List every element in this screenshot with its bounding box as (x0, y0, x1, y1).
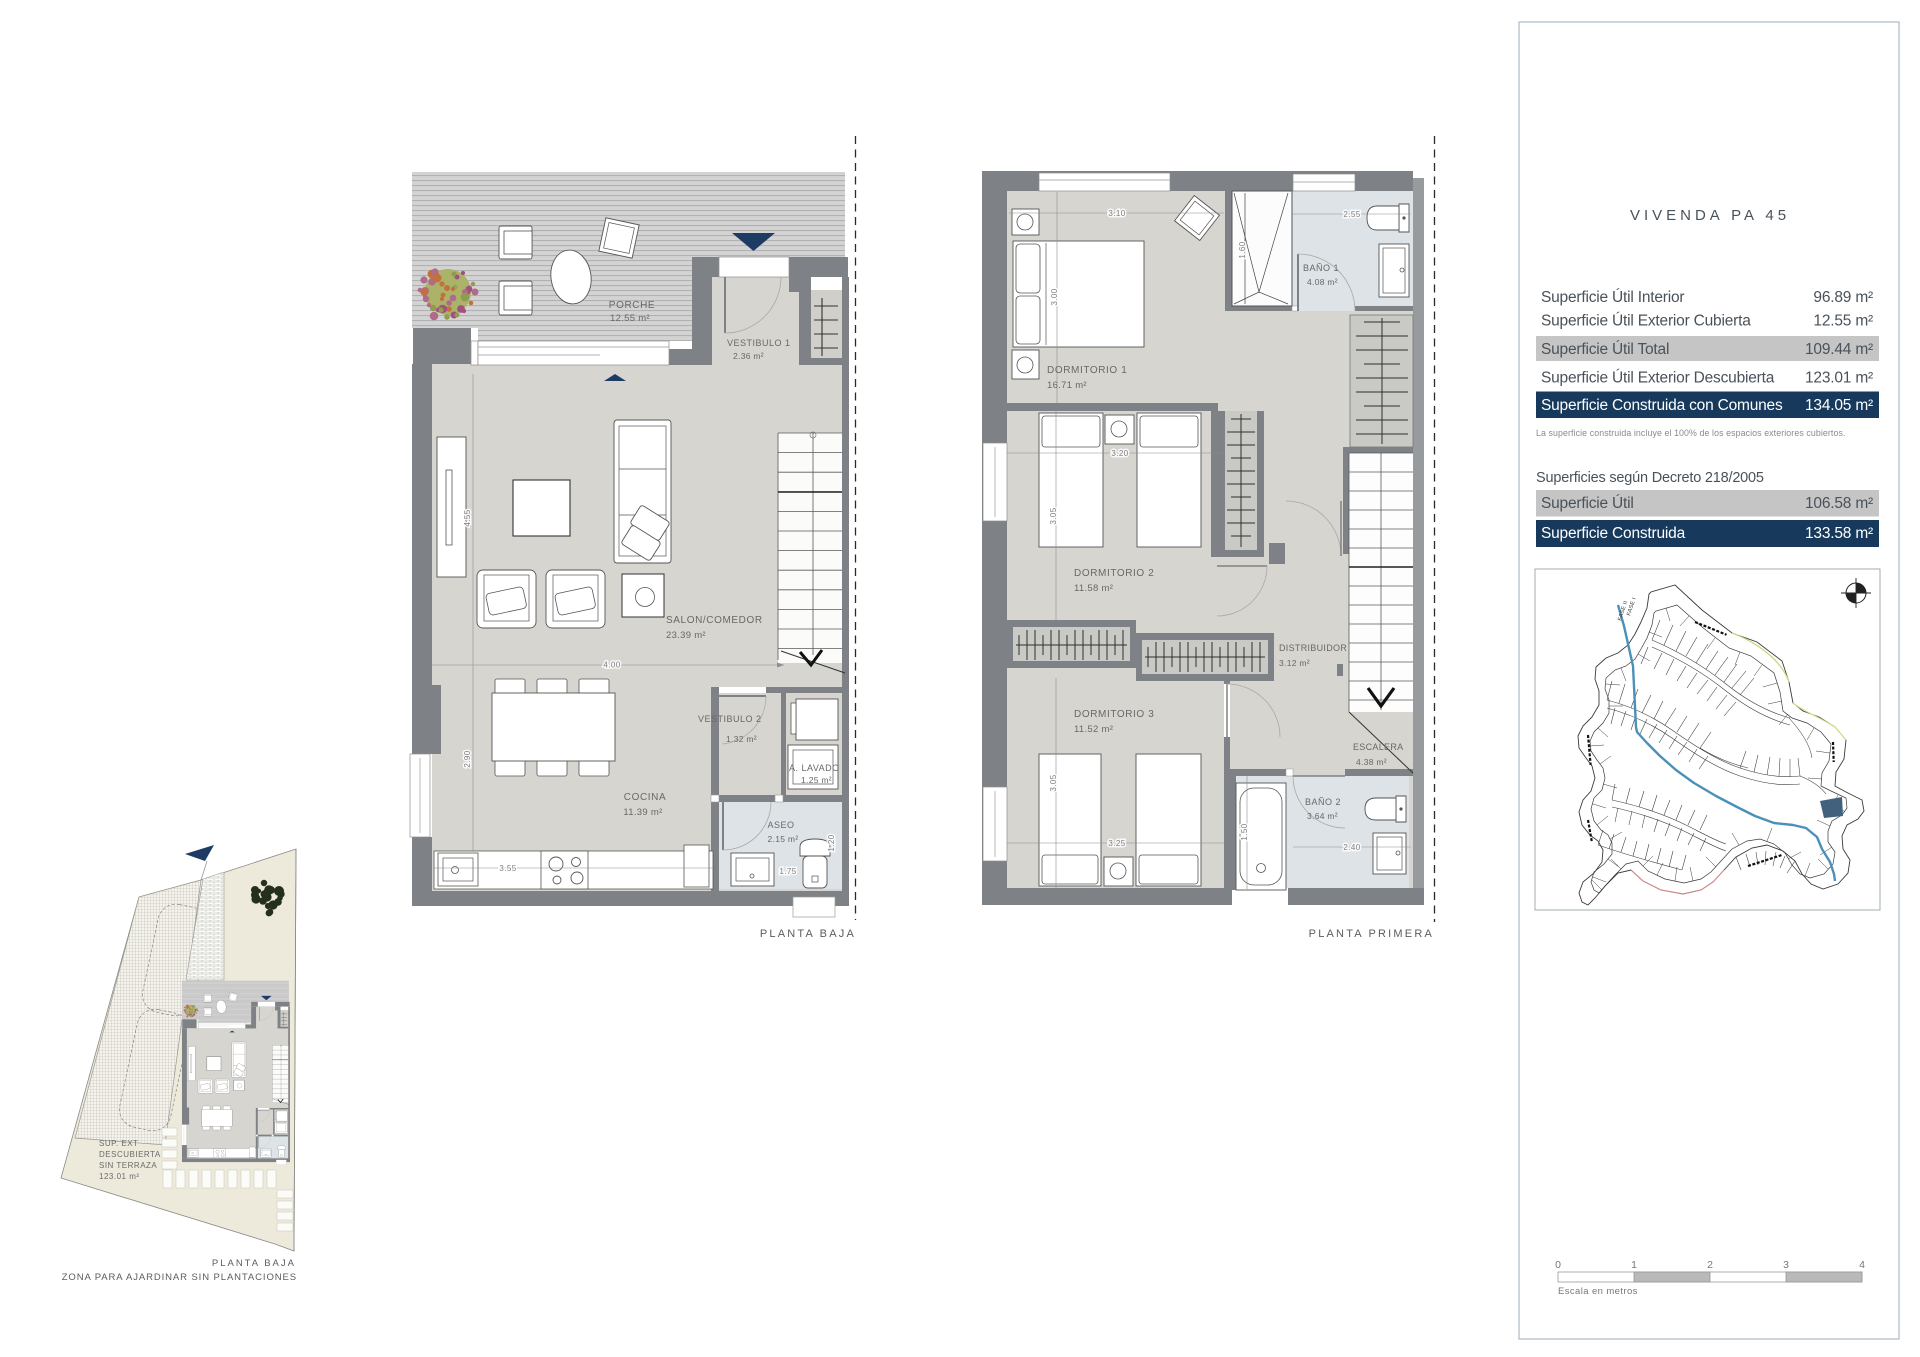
svg-text:16.71 m²: 16.71 m² (1047, 380, 1087, 391)
svg-text:PLANTA PRIMERA: PLANTA PRIMERA (1309, 928, 1434, 940)
svg-text:Superficies según Decreto 218/: Superficies según Decreto 218/2005 (1536, 470, 1764, 486)
svg-text:DESCUBIERTA: DESCUBIERTA (99, 1150, 161, 1159)
svg-text:1.50: 1.50 (1240, 823, 1249, 840)
svg-text:23.39 m²: 23.39 m² (666, 630, 706, 641)
svg-text:ESCALERA: ESCALERA (1353, 742, 1403, 752)
svg-text:2.40: 2.40 (1343, 843, 1360, 852)
svg-text:VIVENDA PA 45: VIVENDA PA 45 (1630, 207, 1790, 224)
svg-text:109.44 m²: 109.44 m² (1805, 341, 1873, 358)
svg-text:3.10: 3.10 (1108, 209, 1125, 218)
svg-text:ASEO: ASEO (767, 820, 794, 830)
svg-text:11.39 m²: 11.39 m² (623, 807, 662, 818)
svg-text:4.00: 4.00 (603, 661, 620, 670)
svg-text:0: 0 (1555, 1259, 1561, 1271)
svg-text:96.89 m²: 96.89 m² (1813, 289, 1873, 306)
svg-text:DORMITORIO 2: DORMITORIO 2 (1074, 568, 1154, 579)
svg-text:DORMITORIO 1: DORMITORIO 1 (1047, 365, 1127, 376)
svg-text:PLANTA BAJA: PLANTA BAJA (760, 928, 856, 940)
svg-text:11.58 m²: 11.58 m² (1074, 583, 1113, 594)
svg-text:1.20: 1.20 (827, 834, 836, 851)
svg-text:106.58 m²: 106.58 m² (1805, 495, 1873, 512)
svg-text:123.01 m²: 123.01 m² (99, 1172, 140, 1181)
svg-text:2.36 m²: 2.36 m² (733, 351, 764, 361)
svg-text:4.55: 4.55 (463, 509, 472, 526)
svg-text:133.58 m²: 133.58 m² (1805, 525, 1873, 542)
svg-text:3.12 m²: 3.12 m² (1279, 658, 1310, 668)
svg-text:La superficie construida inclu: La superficie construida incluye el 100%… (1536, 428, 1846, 438)
svg-text:DORMITORIO 3: DORMITORIO 3 (1074, 709, 1154, 720)
svg-text:123.01 m²: 123.01 m² (1805, 370, 1873, 387)
svg-text:Superficie Construida con Comu: Superficie Construida con Comunes (1541, 397, 1783, 414)
svg-text:Superficie Útil Exterior Descu: Superficie Útil Exterior Descubierta (1541, 370, 1775, 387)
svg-text:1.32 m²: 1.32 m² (726, 734, 757, 744)
svg-text:12.55 m²: 12.55 m² (610, 313, 650, 324)
svg-text:Escala en metros: Escala en metros (1558, 1286, 1638, 1297)
svg-text:2.55: 2.55 (1343, 210, 1360, 219)
svg-text:3.05: 3.05 (1049, 774, 1058, 791)
svg-text:PORCHE: PORCHE (609, 300, 655, 311)
svg-text:Superficie Útil Interior: Superficie Útil Interior (1541, 289, 1684, 306)
svg-text:4: 4 (1859, 1259, 1865, 1271)
svg-text:12.55 m²: 12.55 m² (1813, 313, 1873, 330)
svg-text:COCINA: COCINA (624, 792, 667, 803)
svg-text:3.05: 3.05 (1049, 507, 1058, 524)
svg-text:BAÑO 2: BAÑO 2 (1305, 797, 1341, 807)
svg-text:4.08 m²: 4.08 m² (1307, 277, 1338, 287)
svg-text:Superficie Construida: Superficie Construida (1541, 525, 1686, 542)
svg-text:1.25 m²: 1.25 m² (801, 775, 832, 785)
svg-text:ZONA PARA AJARDINAR SIN PLANTA: ZONA PARA AJARDINAR SIN PLANTACIONES (62, 1272, 297, 1283)
svg-text:3.20: 3.20 (1111, 449, 1128, 458)
svg-text:SALON/COMEDOR: SALON/COMEDOR (666, 615, 763, 626)
svg-text:DISTRIBUIDOR: DISTRIBUIDOR (1279, 643, 1347, 653)
svg-text:1.75: 1.75 (779, 867, 796, 876)
svg-text:2: 2 (1707, 1259, 1713, 1271)
svg-text:11.52 m²: 11.52 m² (1074, 724, 1113, 735)
svg-text:1: 1 (1631, 1259, 1637, 1271)
svg-text:Superficie Útil Total: Superficie Útil Total (1541, 341, 1669, 358)
svg-text:3: 3 (1783, 1259, 1789, 1271)
svg-text:2.90: 2.90 (463, 750, 472, 767)
svg-text:BAÑO 1: BAÑO 1 (1303, 263, 1339, 273)
svg-text:2.15 m²: 2.15 m² (768, 834, 799, 844)
svg-text:PLANTA BAJA: PLANTA BAJA (212, 1258, 296, 1269)
svg-text:VESTIBULO 2: VESTIBULO 2 (698, 714, 762, 724)
svg-text:Superficie Útil: Superficie Útil (1541, 495, 1634, 512)
svg-text:A. LAVADO: A. LAVADO (789, 763, 840, 773)
svg-text:3.55: 3.55 (499, 864, 516, 873)
svg-text:3.25: 3.25 (1108, 839, 1125, 848)
svg-text:SIN TERRAZA: SIN TERRAZA (99, 1161, 157, 1170)
svg-text:134.05 m²: 134.05 m² (1805, 397, 1873, 414)
svg-text:4.38 m²: 4.38 m² (1356, 757, 1387, 767)
svg-text:VESTIBULO 1: VESTIBULO 1 (727, 338, 791, 348)
svg-text:Superficie Útil Exterior Cubie: Superficie Útil Exterior Cubierta (1541, 313, 1751, 330)
svg-text:SUP. EXT: SUP. EXT (99, 1139, 138, 1148)
svg-text:1.60: 1.60 (1238, 241, 1247, 258)
svg-text:3.00: 3.00 (1050, 288, 1059, 305)
svg-text:3.64 m²: 3.64 m² (1307, 811, 1338, 821)
